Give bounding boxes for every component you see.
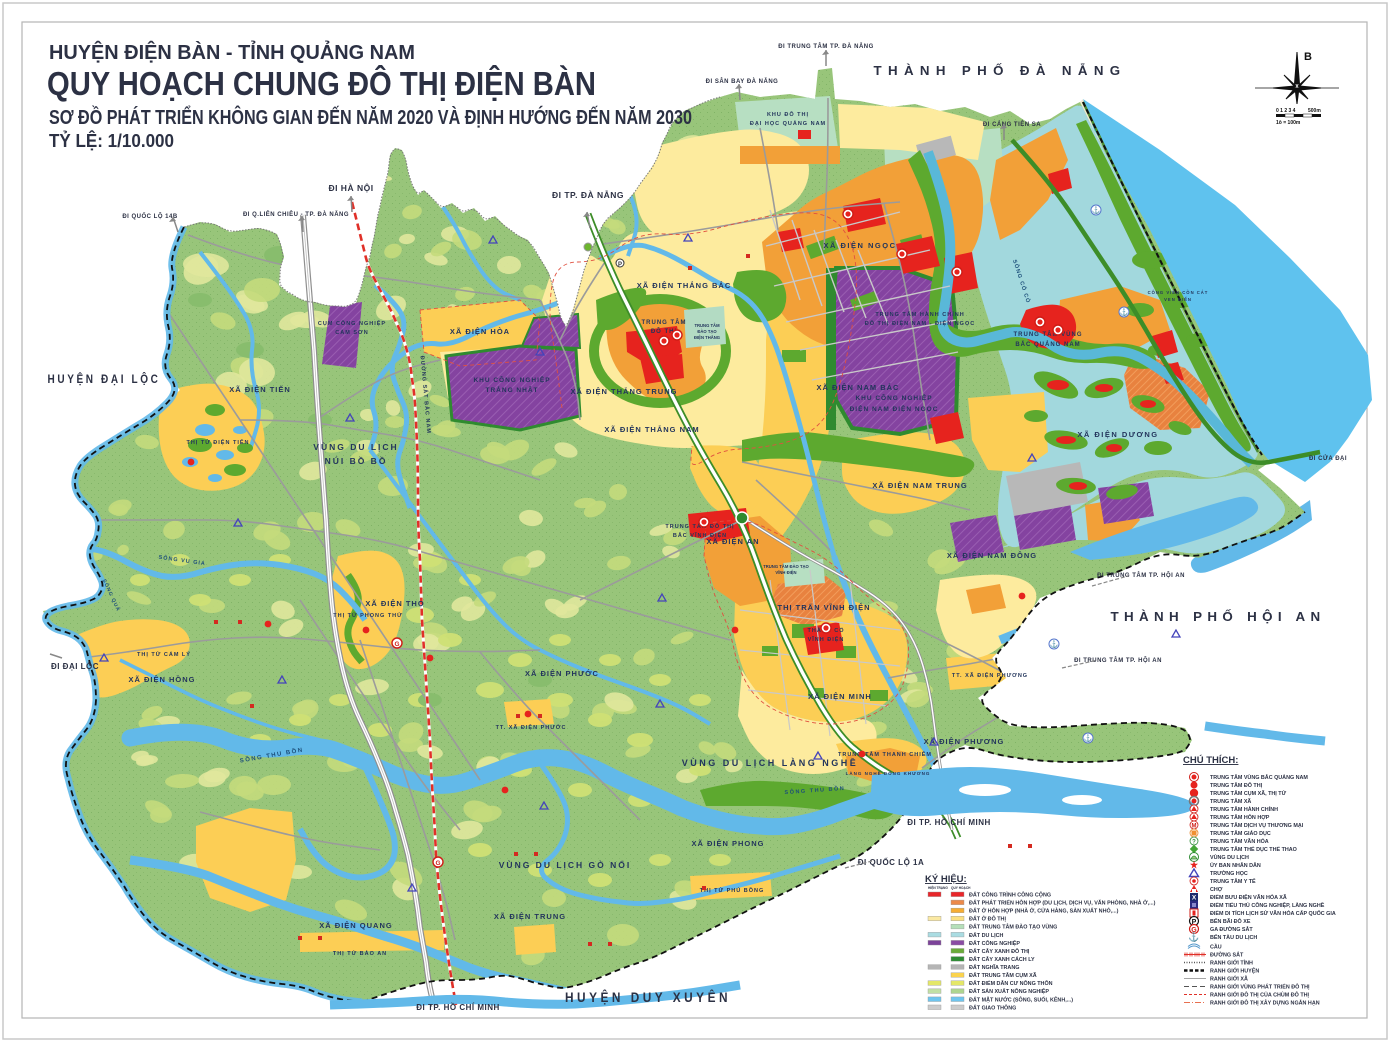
svg-text:ĐI ĐẠI LỘC: ĐI ĐẠI LỘC (51, 662, 99, 671)
svg-text:XÃ ĐIỆN PHONG: XÃ ĐIỆN PHONG (691, 839, 764, 848)
svg-text:ĐI TRUNG TÂM TP. ĐÀ NẴNG: ĐI TRUNG TÂM TP. ĐÀ NẴNG (778, 43, 874, 50)
svg-text:KHU CÔNG NGHIỆP: KHU CÔNG NGHIỆP (473, 375, 550, 384)
svg-text:TRUNG TÂM VÙNG: TRUNG TÂM VÙNG (1014, 331, 1083, 338)
svg-text:TRUNG TÂM HÀNH CHÍNH: TRUNG TÂM HÀNH CHÍNH (875, 310, 964, 318)
svg-text:ĐIỆN THẮNG: ĐIỆN THẮNG (694, 335, 720, 340)
svg-text:ĐẤT TRUNG TÂM ĐÀO TẠO VÙNG: ĐẤT TRUNG TÂM ĐÀO TẠO VÙNG (969, 924, 1057, 931)
svg-text:XÃ ĐIỆN NAM TRUNG: XÃ ĐIỆN NAM TRUNG (872, 481, 967, 490)
svg-text:XÃ ĐIỆN HÒA: XÃ ĐIỆN HÒA (450, 327, 510, 336)
svg-text:BẾN TÀU DU LỊCH: BẾN TÀU DU LỊCH (1210, 934, 1257, 941)
svg-text:TRUNG TÂM DỊCH VỤ THƯƠNG MẠI: TRUNG TÂM DỊCH VỤ THƯƠNG MẠI (1210, 822, 1304, 829)
svg-text:ĐẤT SẢN XUẤT NÔNG NGHIỆP: ĐẤT SẢN XUẤT NÔNG NGHIỆP (969, 987, 1049, 995)
svg-text:ĐẤT ĐIỂM DÂN CƯ NÔNG THÔN: ĐẤT ĐIỂM DÂN CƯ NÔNG THÔN (969, 979, 1053, 987)
svg-text:TRUNG TÂM ĐÔ THỊ: TRUNG TÂM ĐÔ THỊ (1210, 781, 1263, 789)
svg-text:TRUNG TÂM Y TẾ: TRUNG TÂM Y TẾ (1210, 878, 1256, 885)
svg-text:VÙNG DU LỊCH: VÙNG DU LỊCH (313, 441, 398, 452)
svg-text:ĐẤT CÂY XANH ĐÔ THỊ: ĐẤT CÂY XANH ĐÔ THỊ (969, 947, 1030, 955)
svg-text:HUYỆN ĐIỆN BÀN - TỈNH QUẢNG NA: HUYỆN ĐIỆN BÀN - TỈNH QUẢNG NAM (49, 40, 415, 64)
svg-text:VĨNH ĐIỆN: VĨNH ĐIỆN (808, 635, 845, 643)
svg-text:XÃ ĐIỆN HỒNG: XÃ ĐIỆN HỒNG (128, 674, 195, 684)
svg-text:XÃ ĐIỆN DƯƠNG: XÃ ĐIỆN DƯƠNG (1077, 430, 1158, 439)
svg-text:CẨM SƠN: CẨM SƠN (335, 329, 368, 336)
svg-text:TRUNG TÂM THANH CHIÊM: TRUNG TÂM THANH CHIÊM (838, 750, 932, 758)
svg-text:XÃ ĐIỆN THẮNG TRUNG: XÃ ĐIỆN THẮNG TRUNG (571, 387, 678, 396)
svg-text:⚓: ⚓ (1188, 931, 1199, 942)
svg-text:TRẢNG NHẬT: TRẢNG NHẬT (486, 385, 539, 394)
svg-text:XÃ ĐIỆN THỌ: XÃ ĐIỆN THỌ (365, 599, 424, 608)
svg-text:QUY HOẠCH CHUNG ĐÔ THỊ ĐIỆN BÀ: QUY HOẠCH CHUNG ĐÔ THỊ ĐIỆN BÀN (47, 64, 596, 102)
svg-text:HIỆN TRẠNG: HIỆN TRẠNG (928, 885, 948, 890)
svg-text:TRUNG TÂM HÀNH CHÍNH: TRUNG TÂM HÀNH CHÍNH (1210, 805, 1278, 813)
svg-text:ĐẤT CÂY XANH CÁCH LY: ĐẤT CÂY XANH CÁCH LY (969, 956, 1035, 963)
svg-text:ĐIỂM DI TÍCH LỊCH SỬ VĂN HÓA C: ĐIỂM DI TÍCH LỊCH SỬ VĂN HÓA CẤP QUỐC GI… (1210, 909, 1336, 917)
svg-text:ĐẤT Ở HỖN HỢP (NHÀ Ở, CỬA HÀNG: ĐẤT Ở HỖN HỢP (NHÀ Ở, CỬA HÀNG, SẢN XUẤT… (969, 908, 1119, 915)
svg-text:ĐIỂM TIỂU THỦ CÔNG NGHIỆP, LÀN: ĐIỂM TIỂU THỦ CÔNG NGHIỆP, LÀNG NGHỀ (1210, 901, 1325, 909)
svg-text:XÃ ĐIỆN TIẾN: XÃ ĐIỆN TIẾN (229, 384, 291, 394)
svg-text:ĐẤT CÔNG TRÌNH CÔNG CỘNG: ĐẤT CÔNG TRÌNH CÔNG CỘNG (969, 890, 1051, 898)
svg-text:HUYỆN DUY XUYÊN: HUYỆN DUY XUYÊN (565, 990, 731, 1005)
svg-text:M: M (1192, 824, 1197, 830)
svg-text:ĐI QUỐC LỘ 14B: ĐI QUỐC LỘ 14B (122, 212, 178, 220)
svg-text:⚓: ⚓ (1120, 308, 1129, 317)
svg-text:XÃ ĐIỆN NGỌC: XÃ ĐIỆN NGỌC (823, 241, 896, 250)
svg-text:THỊ TỨ PHÚ BỒNG: THỊ TỨ PHÚ BỒNG (700, 887, 764, 894)
svg-text:TRUNG TÂM HỖN HỢP: TRUNG TÂM HỖN HỢP (1210, 814, 1270, 821)
svg-text:TRUNG TÂM VĂN HÓA: TRUNG TÂM VĂN HÓA (1210, 837, 1269, 845)
svg-text:ĐẤT TRUNG TÂM CỤM XÃ: ĐẤT TRUNG TÂM CỤM XÃ (969, 972, 1037, 979)
svg-text:XÃ ĐIỆN THẮNG BẮC: XÃ ĐIỆN THẮNG BẮC (637, 281, 732, 290)
svg-text:ĐI TP. HỒ CHÍ MINH: ĐI TP. HỒ CHÍ MINH (416, 1002, 500, 1012)
svg-text:GA ĐƯỜNG SẮT: GA ĐƯỜNG SẮT (1210, 925, 1253, 933)
svg-text:ĐẤT NGHĨA TRANG: ĐẤT NGHĨA TRANG (969, 964, 1019, 971)
svg-text:THỊ TỨ ĐIỆN TIÊN: THỊ TỨ ĐIỆN TIÊN (186, 438, 249, 446)
svg-text:HUYỆN ĐẠI LỘC: HUYỆN ĐẠI LỘC (48, 373, 161, 386)
svg-text:CÔNG VIÊN CỒN CÁT: CÔNG VIÊN CỒN CÁT (1148, 290, 1209, 295)
svg-text:ĐI Q.LIÊN CHIÊU - TP. ĐÀ NẴNG: ĐI Q.LIÊN CHIÊU - TP. ĐÀ NẴNG (243, 210, 349, 218)
svg-text:BẮC VĨNH ĐIỆN: BẮC VĨNH ĐIỆN (673, 531, 727, 539)
svg-text:TRUNG TÂM: TRUNG TÂM (694, 323, 720, 328)
svg-text:LÀNG NGHỀ ĐÔNG KHƯƠNG: LÀNG NGHỀ ĐÔNG KHƯƠNG (846, 769, 931, 776)
svg-text:XÃ ĐIỆN NAM BẮC: XÃ ĐIỆN NAM BẮC (817, 383, 900, 392)
svg-text:XÃ ĐIỆN QUANG: XÃ ĐIỆN QUANG (319, 921, 392, 930)
svg-text:ĐIỂM BƯU ĐIỆN VĂN HÓA XÃ: ĐIỂM BƯU ĐIỆN VĂN HÓA XÃ (1210, 893, 1287, 901)
svg-text:TRUNG TÂM THỂ DỤC THỂ THAO: TRUNG TÂM THỂ DỤC THỂ THAO (1210, 846, 1297, 853)
svg-text:P: P (618, 262, 622, 268)
svg-text:ĐI TP. HỒ CHÍ MINH: ĐI TP. HỒ CHÍ MINH (907, 817, 991, 827)
svg-text:BẾN BÃI ĐỖ XE: BẾN BÃI ĐỖ XE (1210, 918, 1251, 925)
svg-text:CHÚ THÍCH:: CHÚ THÍCH: (1183, 754, 1238, 766)
svg-text:ĐẤT GIAO THÔNG: ĐẤT GIAO THÔNG (969, 1003, 1016, 1011)
svg-text:ĐẠI HỌC QUẢNG NAM: ĐẠI HỌC QUẢNG NAM (750, 120, 826, 127)
svg-text:⚓: ⚓ (1084, 734, 1093, 743)
svg-text:THỊ TRẤN VĨNH ĐIỆN: THỊ TRẤN VĨNH ĐIỆN (778, 602, 871, 612)
svg-text:TRUNG TÂM VÙNG BẮC QUẢNG NAM: TRUNG TÂM VÙNG BẮC QUẢNG NAM (1210, 773, 1308, 781)
svg-text:ĐI TRUNG TÂM TP. HỘI AN: ĐI TRUNG TÂM TP. HỘI AN (1097, 571, 1185, 579)
svg-text:ĐI QUỐC LỘ 1A: ĐI QUỐC LỘ 1A (858, 857, 925, 867)
svg-text:XÃ ĐIỆN MINH: XÃ ĐIỆN MINH (808, 692, 872, 701)
svg-text:⚓: ⚓ (1050, 640, 1059, 649)
svg-text:ĐI CỬA ĐẠI: ĐI CỬA ĐẠI (1309, 455, 1347, 462)
svg-text:THỊ TỨ PHONG THỬ: THỊ TỨ PHONG THỬ (333, 612, 402, 619)
svg-text:?: ? (1192, 840, 1196, 846)
svg-text:VÙNG DU LỊCH: VÙNG DU LỊCH (1210, 854, 1249, 861)
svg-text:THỊ TỨ CẨM LÝ: THỊ TỨ CẨM LÝ (137, 651, 191, 658)
svg-text:RANH GIỚI XÃ: RANH GIỚI XÃ (1210, 975, 1248, 983)
svg-text:TRUNG TÂM ĐÀO TẠO: TRUNG TÂM ĐÀO TẠO (763, 564, 809, 569)
svg-text:ĐI SÂN BAY ĐÀ NẴNG: ĐI SÂN BAY ĐÀ NẴNG (706, 78, 779, 85)
svg-text:THỊ TỨ BẢO AN: THỊ TỨ BẢO AN (333, 950, 387, 957)
svg-text:NÚI BỒ BỒ: NÚI BỒ BỒ (325, 455, 388, 466)
svg-text:G: G (435, 860, 440, 867)
svg-text:KHU CÔNG NGHIỆP: KHU CÔNG NGHIỆP (855, 393, 932, 402)
svg-text:ĐƯỜNG SẮT: ĐƯỜNG SẮT (1210, 951, 1244, 959)
svg-text:VĨNH ĐIỆN: VĨNH ĐIỆN (775, 570, 796, 575)
svg-text:QUY HOẠCH: QUY HOẠCH (951, 886, 971, 890)
svg-text:BẮC QUẢNG NAM: BẮC QUẢNG NAM (1015, 340, 1080, 348)
svg-text:1ô = 100m: 1ô = 100m (1276, 120, 1301, 126)
svg-text:ĐẤT Ở ĐÔ THỊ: ĐẤT Ở ĐÔ THỊ (969, 915, 1006, 923)
svg-text:ĐẤT PHÁT TRIỂN HỖN HỢP (DU LỊC: ĐẤT PHÁT TRIỂN HỖN HỢP (DU LỊCH, DỊCH VỤ… (969, 898, 1156, 906)
svg-text:X: X (1192, 895, 1197, 902)
svg-text:KÝ HIỆU:: KÝ HIỆU: (925, 873, 967, 885)
svg-text:TRUNG TÂM CỤM XÃ, THỊ TỨ: TRUNG TÂM CỤM XÃ, THỊ TỨ (1210, 790, 1287, 797)
svg-text:RANH GIỚI HUYỆN: RANH GIỚI HUYỆN (1210, 967, 1259, 975)
svg-text:SƠ ĐỒ PHÁT TRIỂN KHÔNG GIAN ĐẾ: SƠ ĐỒ PHÁT TRIỂN KHÔNG GIAN ĐẾN NĂM 2020… (49, 105, 692, 129)
svg-text:TRUNG TÂM XÃ: TRUNG TÂM XÃ (1210, 798, 1251, 805)
svg-text:KHU ĐÔ THỊ: KHU ĐÔ THỊ (767, 110, 809, 118)
svg-text:ĐI TP. ĐÀ NẴNG: ĐI TP. ĐÀ NẴNG (552, 189, 624, 200)
svg-text:RANH GIỚI ĐÔ THỊ XÂY DỰNG NGẮN: RANH GIỚI ĐÔ THỊ XÂY DỰNG NGẮN HẠN (1210, 999, 1320, 1007)
svg-text:ĐÀO TẠO: ĐÀO TẠO (697, 329, 717, 334)
svg-text:THÀNH PHỐ ĐÀ NẴNG: THÀNH PHỐ ĐÀ NẴNG (874, 63, 1127, 78)
svg-text:XÃ ĐIỆN TRUNG: XÃ ĐIỆN TRUNG (494, 912, 566, 921)
svg-text:CHỢ: CHỢ (1210, 887, 1223, 893)
svg-text:ĐI HÀ NỘI: ĐI HÀ NỘI (328, 182, 373, 193)
svg-text:THÀNH PHỐ HỘI AN: THÀNH PHỐ HỘI AN (1111, 609, 1326, 624)
svg-text:XÃ ĐIỆN NAM ĐÔNG: XÃ ĐIỆN NAM ĐÔNG (947, 551, 1037, 560)
svg-text:XÃ ĐIỆN PHƯỚC: XÃ ĐIỆN PHƯỚC (525, 669, 599, 678)
svg-text:ĐI CẢNG TIÊN SA: ĐI CẢNG TIÊN SA (983, 120, 1041, 128)
svg-text:0 1 2 3 4: 0 1 2 3 4 (1276, 108, 1296, 114)
svg-text:RANH GIỚI VÙNG PHÁT TRIỂN ĐÔ T: RANH GIỚI VÙNG PHÁT TRIỂN ĐÔ THỊ (1210, 983, 1310, 991)
svg-text:ỦY BAN NHÂN DÂN: ỦY BAN NHÂN DÂN (1210, 862, 1261, 869)
svg-text:ĐẤT DU LỊCH: ĐẤT DU LỊCH (969, 932, 1004, 939)
svg-text:XÃ ĐIỆN THẮNG NAM: XÃ ĐIỆN THẮNG NAM (604, 425, 699, 434)
svg-text:TT. XÃ ĐIỆN PHƯƠNG: TT. XÃ ĐIỆN PHƯƠNG (952, 671, 1028, 679)
svg-text:ĐẤT CÔNG NGHIỆP: ĐẤT CÔNG NGHIỆP (969, 939, 1020, 947)
svg-text:TỶ LỆ: 1/10.000: TỶ LỆ: 1/10.000 (49, 130, 174, 151)
svg-text:TT. XÃ ĐIỆN PHƯỚC: TT. XÃ ĐIỆN PHƯỚC (496, 723, 567, 731)
svg-text:CỤM CÔNG NGHIỆP: CỤM CÔNG NGHIỆP (318, 319, 386, 327)
svg-text:ĐẤT MẶT NƯỚC (SÔNG, SUỐI, KÊNH: ĐẤT MẶT NƯỚC (SÔNG, SUỐI, KÊNH,...) (969, 995, 1073, 1003)
svg-text:CẦU: CẦU (1210, 944, 1222, 951)
svg-text:TRUNG TÂM GIÁO DỤC: TRUNG TÂM GIÁO DỤC (1210, 830, 1271, 837)
svg-text:RANH GIỚI TỈNH: RANH GIỚI TỈNH (1210, 959, 1253, 967)
svg-text:VÙNG DU LỊCH GÒ NỔI: VÙNG DU LỊCH GÒ NỔI (499, 859, 631, 870)
svg-text:B: B (1304, 51, 1312, 63)
svg-text:VÙNG DU LỊCH LÀNG NGHỀ: VÙNG DU LỊCH LÀNG NGHỀ (682, 757, 859, 768)
svg-text:ĐIỆN NAM ĐIỆN NGỌC: ĐIỆN NAM ĐIỆN NGỌC (850, 404, 939, 413)
svg-text:500m: 500m (1308, 108, 1321, 114)
svg-text:TRUNG TÂM: TRUNG TÂM (642, 319, 687, 326)
svg-text:⚓: ⚓ (1092, 206, 1101, 215)
svg-text:ĐÔ THỊ ĐIỆN NAM - ĐIỆN NGỌC: ĐÔ THỊ ĐIỆN NAM - ĐIỆN NGỌC (865, 319, 975, 327)
svg-text:VEN BIỂN: VEN BIỂN (1164, 297, 1192, 302)
svg-text:TRƯỜNG HỌC: TRƯỜNG HỌC (1210, 869, 1248, 877)
svg-text:G: G (394, 641, 399, 648)
svg-text:RANH GIỚI ĐÔ THỊ CỦA CHÙM ĐÔ T: RANH GIỚI ĐÔ THỊ CỦA CHÙM ĐÔ THỊ (1210, 991, 1310, 999)
